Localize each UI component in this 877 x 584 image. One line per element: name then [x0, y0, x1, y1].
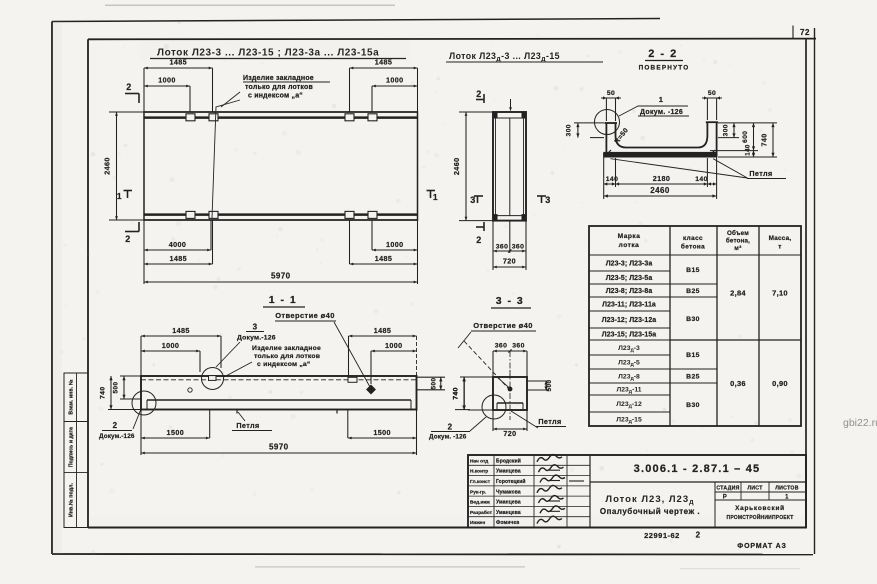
svg-text:2: 2 — [125, 234, 130, 244]
svg-text:2: 2 — [476, 89, 481, 99]
svg-text:2: 2 — [696, 531, 701, 540]
svg-text:Масса,: Масса, — [769, 235, 792, 242]
svg-text:Опалубочный чертеж .: Опалубочный чертеж . — [600, 507, 700, 516]
svg-text:Отверстие ø40: Отверстие ø40 — [275, 311, 335, 320]
svg-text:2: 2 — [476, 235, 481, 245]
svg-text:2 - 2: 2 - 2 — [648, 48, 678, 60]
svg-text:720: 720 — [503, 429, 516, 438]
svg-text:Л23-5; Л23-5а: Л23-5; Л23-5а — [606, 275, 653, 282]
svg-text:В30: В30 — [686, 402, 700, 409]
svg-text:Докум. -126: Докум. -126 — [429, 434, 467, 441]
svg-text:1: 1 — [659, 95, 664, 104]
svg-text:4000: 4000 — [169, 240, 187, 249]
svg-text:720: 720 — [503, 257, 516, 266]
svg-text:1000: 1000 — [158, 76, 176, 85]
svg-text:Уманцева: Уманцева — [496, 510, 521, 516]
svg-text:Уманцева: Уманцева — [496, 500, 521, 506]
svg-text:1000: 1000 — [386, 240, 404, 249]
svg-text:Марка: Марка — [618, 233, 641, 240]
svg-text:Чумакова: Чумакова — [496, 489, 521, 495]
svg-text:22991-62: 22991-62 — [644, 531, 680, 540]
svg-text:2: 2 — [113, 421, 118, 430]
svg-text:5970: 5970 — [269, 443, 289, 452]
svg-text:360: 360 — [495, 343, 508, 350]
svg-text:Л23-11; Л23-11а: Л23-11; Л23-11а — [602, 302, 656, 309]
svg-text:gbi22.ru: gbi22.ru — [843, 417, 877, 429]
svg-text:Вед.инж: Вед.инж — [470, 500, 490, 506]
svg-text:1: 1 — [785, 495, 789, 501]
svg-text:7,10: 7,10 — [772, 289, 788, 298]
svg-text:В15: В15 — [686, 267, 700, 274]
svg-text:Нач отд: Нач отд — [470, 458, 488, 464]
svg-text:Петля: Петля — [749, 169, 772, 178]
svg-text:В30: В30 — [686, 316, 700, 323]
svg-text:0,90: 0,90 — [772, 379, 788, 388]
svg-text:140: 140 — [695, 176, 708, 183]
svg-text:5970: 5970 — [271, 272, 291, 281]
svg-text:1 - 1: 1 - 1 — [269, 294, 298, 306]
svg-text:В25: В25 — [686, 288, 700, 295]
svg-text:140: 140 — [606, 176, 619, 183]
svg-text:Отверстие ø40: Отверстие ø40 — [473, 321, 533, 330]
svg-text:В15: В15 — [686, 352, 700, 359]
svg-text:только для лотков: только для лотков — [245, 84, 314, 91]
svg-text:Петля: Петля — [236, 421, 259, 430]
svg-text:3 - 3: 3 - 3 — [496, 295, 525, 307]
svg-text:740: 740 — [453, 387, 460, 400]
svg-text:2460: 2460 — [650, 186, 670, 195]
svg-text:ПОВЕРНУТО: ПОВЕРНУТО — [639, 65, 690, 72]
svg-text:1000: 1000 — [385, 341, 403, 350]
svg-text:Н.контр: Н.контр — [470, 469, 488, 475]
svg-text:СТАДИЯ: СТАДИЯ — [716, 486, 739, 492]
svg-text:1485: 1485 — [374, 326, 392, 335]
svg-text:740: 740 — [100, 386, 107, 399]
svg-text:Гл.конст: Гл.конст — [470, 479, 491, 485]
svg-text:1000: 1000 — [162, 341, 180, 350]
svg-text:лотка: лотка — [619, 242, 640, 249]
svg-text:с индексом „а“: с индексом „а“ — [257, 361, 311, 368]
svg-text:Изделие закладное: Изделие закладное — [243, 75, 314, 82]
svg-text:м³: м³ — [734, 245, 741, 252]
svg-text:1485: 1485 — [375, 254, 393, 263]
svg-text:140: 140 — [745, 144, 752, 156]
svg-text:только для лотков: только для лотков — [254, 353, 320, 360]
svg-text:Л23-15; Л23-15а: Л23-15; Л23-15а — [602, 332, 657, 339]
svg-text:3.006.1 - 2.87.1 – 45: 3.006.1 - 2.87.1 – 45 — [634, 463, 761, 475]
svg-text:Харьковский: Харьковский — [735, 504, 785, 512]
svg-text:ФОРМАТ АЗ: ФОРМАТ АЗ — [737, 543, 786, 550]
svg-text:Л23-3; Л23-3а: Л23-3; Л23-3а — [606, 261, 653, 268]
svg-text:Разработ: Разработ — [470, 509, 493, 516]
svg-text:1: 1 — [117, 191, 122, 201]
svg-text:Бродский: Бродский — [496, 457, 521, 464]
svg-text:2460: 2460 — [103, 157, 112, 175]
svg-text:2180: 2180 — [653, 174, 671, 183]
svg-text:Докум. -126: Докум. -126 — [640, 109, 683, 116]
svg-text:1500: 1500 — [167, 428, 185, 437]
svg-text:50: 50 — [607, 90, 615, 97]
svg-text:3: 3 — [253, 323, 258, 332]
svg-text:360: 360 — [512, 244, 525, 251]
svg-text:Горотецкий: Горотецкий — [496, 478, 526, 485]
svg-text:500: 500 — [546, 380, 553, 392]
svg-text:с индексом „а“: с индексом „а“ — [248, 93, 303, 100]
svg-text:Рук-гр.: Рук-гр. — [470, 489, 486, 495]
svg-text:Лоток Л23, Л23д: Лоток Л23, Л23д — [605, 494, 694, 506]
svg-text:Инв.№ подл.: Инв.№ подл. — [69, 483, 75, 518]
svg-text:бетона: бетона — [681, 243, 705, 251]
svg-text:1: 1 — [433, 192, 438, 202]
svg-text:2: 2 — [126, 82, 131, 92]
svg-text:50: 50 — [708, 90, 716, 97]
svg-text:740: 740 — [760, 133, 769, 146]
svg-text:360: 360 — [496, 244, 509, 251]
svg-text:Р: Р — [723, 495, 727, 501]
svg-text:т: т — [778, 244, 782, 251]
svg-text:Уманцева: Уманцева — [496, 469, 521, 475]
svg-text:Л23-8; Л23-8а: Л23-8; Л23-8а — [606, 288, 653, 295]
svg-text:360: 360 — [512, 343, 525, 350]
svg-text:1485: 1485 — [172, 326, 190, 335]
svg-text:ЛИСТ: ЛИСТ — [747, 486, 763, 492]
svg-text:Докум.-126: Докум.-126 — [237, 335, 276, 342]
svg-text:В25: В25 — [686, 374, 700, 381]
svg-text:2460: 2460 — [452, 158, 461, 176]
svg-text:500: 500 — [431, 378, 438, 390]
svg-text:2: 2 — [448, 423, 453, 432]
svg-text:3: 3 — [545, 195, 550, 205]
svg-text:Докум.-126: Докум.-126 — [99, 433, 135, 440]
svg-text:класс: класс — [683, 235, 703, 242]
svg-text:600: 600 — [742, 131, 749, 143]
svg-text:Объем: Объем — [727, 230, 749, 237]
svg-text:0,36: 0,36 — [730, 379, 746, 388]
svg-text:Подпись и дата: Подпись и дата — [69, 427, 75, 467]
svg-text:2,84: 2,84 — [730, 289, 746, 298]
svg-text:бетона,: бетона, — [726, 238, 750, 245]
svg-text:ЛИСТОВ: ЛИСТОВ — [775, 486, 799, 492]
svg-text:Л23-12; Л23-12а: Л23-12; Л23-12а — [602, 317, 657, 324]
svg-text:1000: 1000 — [386, 76, 404, 85]
svg-text:1500: 1500 — [373, 428, 391, 437]
svg-text:72: 72 — [800, 28, 810, 37]
svg-text:300: 300 — [566, 124, 573, 136]
svg-text:Петля: Петля — [538, 417, 561, 426]
svg-text:Взам. инв. №: Взам. инв. № — [69, 379, 75, 414]
svg-text:300: 300 — [723, 124, 730, 136]
